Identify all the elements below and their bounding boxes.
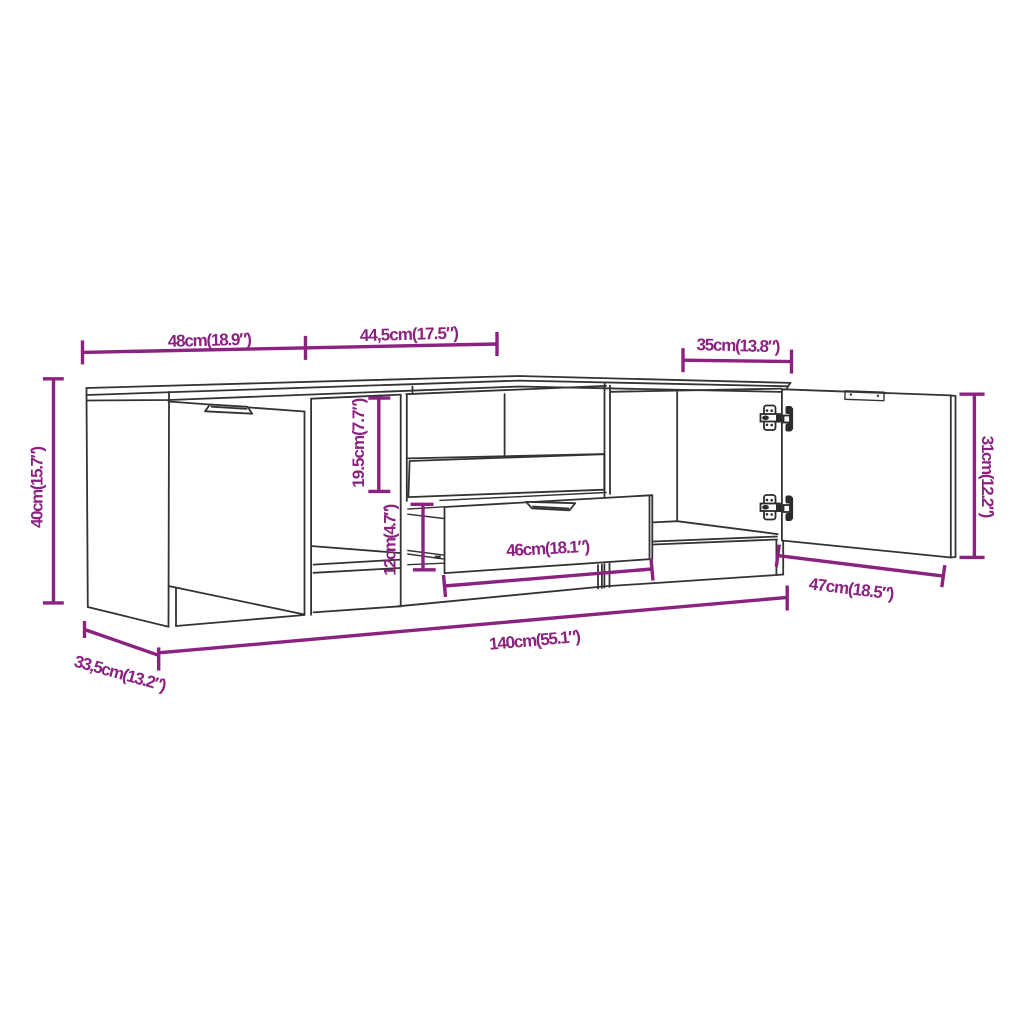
- svg-text:140cm(55.1″): 140cm(55.1″): [488, 627, 581, 654]
- svg-text:35cm(13.8″): 35cm(13.8″): [696, 335, 780, 356]
- svg-text:47cm(18.5″): 47cm(18.5″): [808, 574, 896, 603]
- svg-text:44,5cm(17.5″): 44,5cm(17.5″): [360, 324, 459, 346]
- svg-text:19.5cm(7.7″): 19.5cm(7.7″): [349, 398, 368, 488]
- svg-text:40cm(15.7″): 40cm(15.7″): [28, 446, 47, 528]
- svg-text:31cm(12.2″): 31cm(12.2″): [978, 436, 997, 519]
- svg-text:33,5cm(13.2″): 33,5cm(13.2″): [72, 652, 169, 696]
- svg-text:12cm(4.7″): 12cm(4.7″): [381, 504, 400, 576]
- svg-text:48cm(18.9″): 48cm(18.9″): [168, 330, 252, 351]
